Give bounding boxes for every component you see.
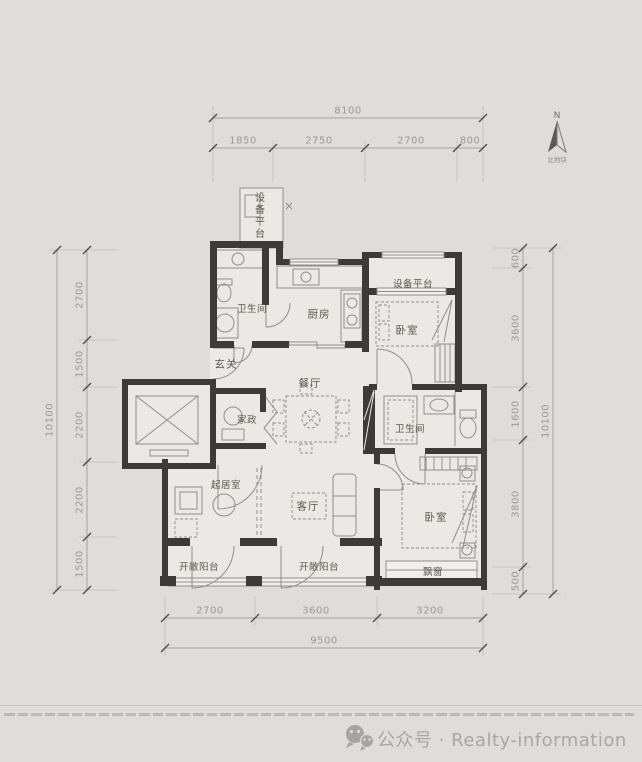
room-label-equip-right: 设备平台 bbox=[393, 276, 433, 290]
room-label-living: 客厅 bbox=[297, 499, 320, 514]
dim-top-total: 8100 bbox=[334, 106, 361, 117]
dim-top-seg-1: 1850 bbox=[229, 136, 256, 147]
dim-top-seg-4: 800 bbox=[460, 136, 481, 147]
wechat-icon bbox=[346, 725, 374, 751]
footer-divider bbox=[0, 705, 642, 706]
room-label-bay-window: 飘窗 bbox=[423, 564, 443, 578]
room-label-bath-main: 卫生间 bbox=[237, 301, 267, 315]
dim-bottom-total: 9500 bbox=[310, 636, 337, 647]
dim-top-seg-3: 2700 bbox=[397, 136, 424, 147]
dim-left-seg-5: 1500 bbox=[75, 550, 86, 577]
room-label-equip-top: 设备平台 bbox=[251, 192, 266, 240]
dim-left-seg-2: 1500 bbox=[75, 350, 86, 377]
dim-top-seg-2: 2750 bbox=[305, 136, 332, 147]
room-label-housekeeping: 家政 bbox=[237, 412, 257, 426]
room-label-dining: 餐厅 bbox=[299, 376, 322, 391]
dim-left-seg-3: 2200 bbox=[75, 411, 86, 438]
dim-right-seg-4: 3800 bbox=[511, 490, 522, 517]
north-caption: 北地块 bbox=[547, 154, 567, 164]
room-label-bath-second: 卫生间 bbox=[395, 421, 425, 435]
dim-left-total: 10100 bbox=[45, 403, 56, 437]
dim-left-seg-1: 2700 bbox=[75, 281, 86, 308]
north-label: N bbox=[554, 111, 561, 121]
dim-left-seg-4: 2200 bbox=[75, 486, 86, 513]
dim-right-seg-2: 3600 bbox=[511, 314, 522, 341]
floorplan-page: 设备平台 卫生间 厨房 设备平台 卧室 玄关 餐厅 家政 卫生间 起居室 客厅 … bbox=[0, 0, 642, 762]
room-label-entry: 玄关 bbox=[215, 357, 238, 372]
north-arrow-icon bbox=[548, 121, 566, 152]
room-label-bedroom-bottom: 卧室 bbox=[425, 510, 448, 525]
dim-right-total: 10100 bbox=[541, 404, 552, 438]
room-label-balcony-right: 开敞阳台 bbox=[299, 559, 339, 573]
room-label-bedroom-top: 卧室 bbox=[396, 323, 419, 338]
dim-bottom-seg-2: 3600 bbox=[302, 606, 329, 617]
dim-bottom-seg-3: 3200 bbox=[416, 606, 443, 617]
brand-text: 公众号 · Realty-information bbox=[377, 726, 627, 752]
room-label-balcony-left: 开敞阳台 bbox=[179, 559, 219, 573]
dim-bottom-seg-1: 2700 bbox=[196, 606, 223, 617]
dim-right-seg-3: 1600 bbox=[511, 400, 522, 427]
fine-print-line bbox=[4, 713, 634, 716]
dim-right-seg-5: 500 bbox=[511, 571, 522, 592]
dim-right-seg-1: 600 bbox=[511, 248, 522, 269]
room-label-sitting: 起居室 bbox=[211, 477, 241, 491]
room-label-kitchen: 厨房 bbox=[308, 307, 331, 322]
